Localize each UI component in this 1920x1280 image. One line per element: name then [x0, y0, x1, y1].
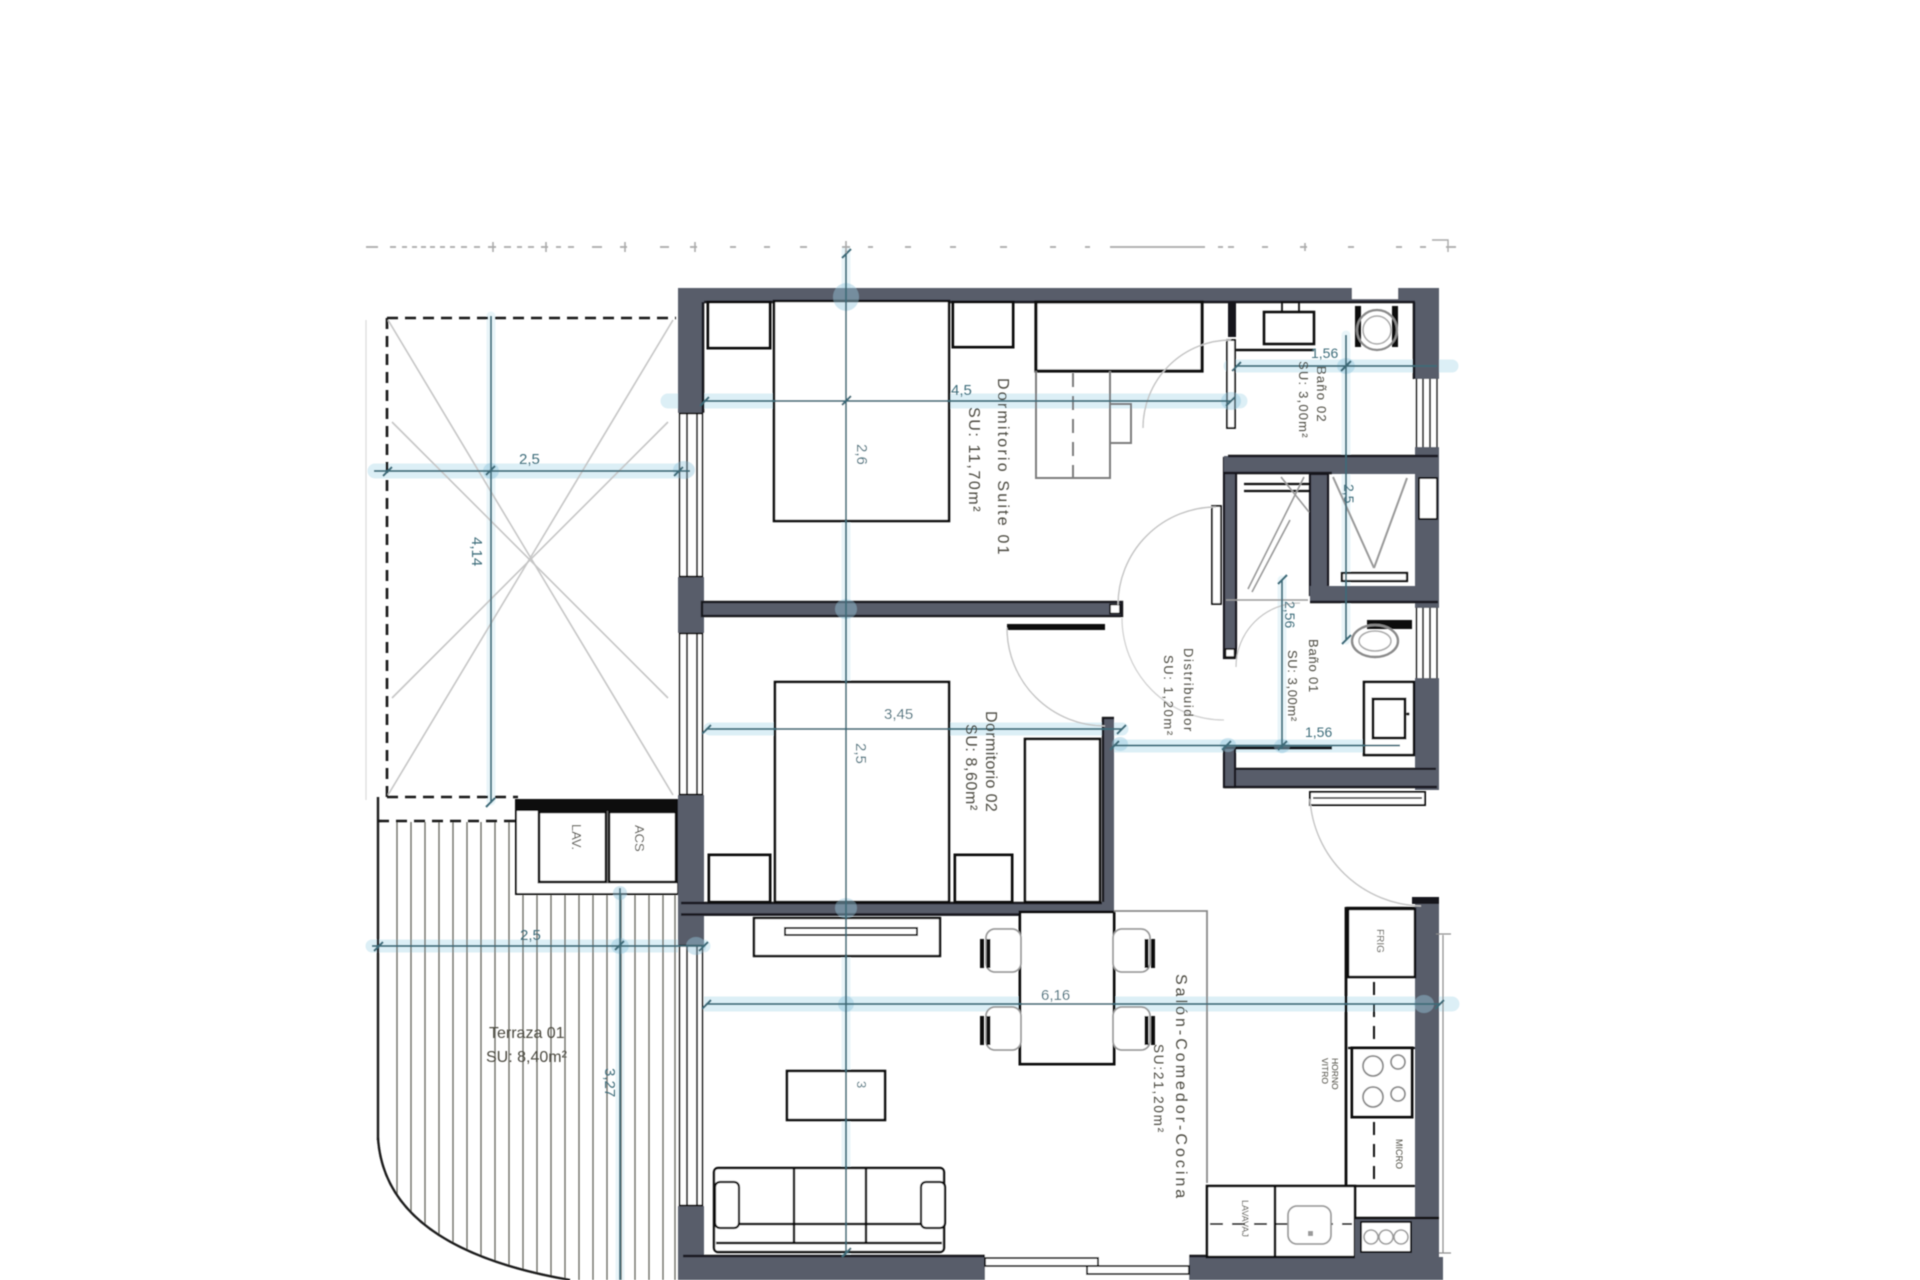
- svg-text:SU: 3,00m²: SU: 3,00m²: [1296, 361, 1311, 439]
- svg-text:4,14: 4,14: [468, 537, 485, 566]
- svg-text:SU: 8,40m²: SU: 8,40m²: [486, 1049, 568, 1066]
- svg-text:Dormitorio Suite 01: Dormitorio Suite 01: [994, 378, 1011, 557]
- svg-text:Baño 01: Baño 01: [1306, 639, 1321, 693]
- svg-text:1,56: 1,56: [1311, 345, 1338, 361]
- svg-text:2,5: 2,5: [519, 451, 540, 468]
- svg-text:3,45: 3,45: [884, 706, 913, 723]
- svg-text:Terraza 01: Terraza 01: [489, 1025, 565, 1042]
- svg-text:2,5: 2,5: [520, 927, 541, 944]
- svg-text:2,56: 2,56: [1282, 601, 1298, 628]
- svg-text:VITRO: VITRO: [1320, 1058, 1330, 1084]
- svg-text:ACS: ACS: [632, 825, 647, 852]
- svg-text:SU: 1,20m²: SU: 1,20m²: [1161, 655, 1176, 737]
- svg-text:Baño 02: Baño 02: [1314, 366, 1329, 423]
- svg-text:3,27: 3,27: [601, 1068, 618, 1097]
- svg-text:SU: 3,00m²: SU: 3,00m²: [1285, 650, 1300, 722]
- svg-text:2,5: 2,5: [1341, 484, 1357, 504]
- svg-text:4,5: 4,5: [951, 382, 972, 399]
- svg-text:MICRO: MICRO: [1394, 1139, 1404, 1169]
- svg-text:6,16: 6,16: [1041, 987, 1070, 1004]
- svg-text:FRIG: FRIG: [1374, 929, 1385, 953]
- svg-text:3: 3: [854, 1081, 869, 1088]
- svg-text:LAVAVAJ: LAVAVAJ: [1240, 1200, 1250, 1237]
- svg-text:Dormitorio 02: Dormitorio 02: [982, 711, 999, 812]
- svg-text:2,6: 2,6: [853, 444, 870, 465]
- svg-text:LAV.: LAV.: [569, 824, 584, 850]
- svg-text:1,56: 1,56: [1305, 724, 1332, 740]
- svg-text:2,5: 2,5: [852, 743, 869, 764]
- svg-text:Salón-Comedor-Cocina: Salón-Comedor-Cocina: [1172, 974, 1189, 1201]
- svg-text:SU:21,20m²: SU:21,20m²: [1151, 1044, 1166, 1134]
- svg-text:SU: 8,60m²: SU: 8,60m²: [962, 724, 979, 811]
- svg-text:Distribuidor: Distribuidor: [1181, 648, 1196, 733]
- svg-text:HORNO: HORNO: [1330, 1058, 1340, 1090]
- svg-text:SU: 11,70m²: SU: 11,70m²: [965, 407, 982, 513]
